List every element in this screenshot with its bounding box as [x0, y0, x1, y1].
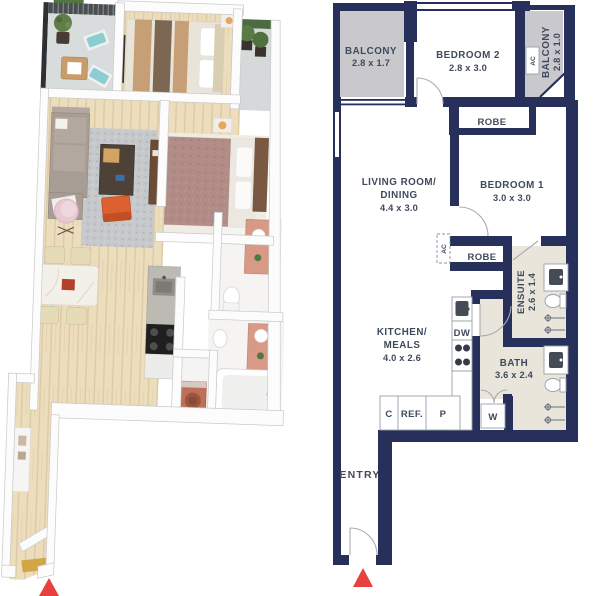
ac-label: AC: [441, 244, 448, 254]
toilet-3d: [213, 329, 228, 347]
bedroom1-dims: 3.0 x 3.0: [493, 193, 531, 203]
vanity-3d: [244, 219, 272, 274]
floorplan-3d: [1, 0, 297, 589]
living-dims: 4.4 x 3.0: [380, 203, 418, 213]
kitchen-dims: 4.0 x 2.6: [383, 353, 421, 363]
robe2-label: ROBE: [467, 252, 496, 263]
bed-icon: [125, 19, 225, 94]
bedroom2-label: BEDROOM 2: [436, 50, 500, 61]
washer-label: W: [488, 412, 497, 423]
stove-icon: [452, 340, 472, 371]
ac-label: AC: [530, 56, 537, 66]
balcony1-label: BALCONY: [345, 46, 397, 57]
entry-label: ENTRY: [339, 469, 380, 481]
living-label-2: DINING: [380, 190, 417, 201]
ensuite-dims: 2.6 x 1.4: [527, 272, 537, 311]
pantry-label: P: [440, 409, 447, 420]
ensuite-label: ENSUITE: [516, 270, 527, 314]
bath-label: BATH: [500, 358, 528, 369]
balcony2-label: BALCONY: [541, 26, 552, 78]
toilet-icon: [545, 379, 561, 392]
floorplan-image: BALCONY 2.8 x 1.7 BEDROOM 2 2.8 x 3.0 BA…: [0, 0, 600, 596]
bath-dims: 3.6 x 2.4: [495, 370, 534, 380]
living-label-1: LIVING ROOM/: [362, 177, 437, 188]
nightstand: [213, 118, 231, 133]
coffee-table: [99, 144, 135, 195]
north-arrow: [353, 568, 373, 587]
kitchen-label-2: MEALS: [384, 340, 421, 351]
balcony1-dims: 2.8 x 1.7: [352, 58, 390, 68]
toilet-3d: [223, 287, 240, 312]
console-table: [13, 427, 31, 492]
balcony-table: [61, 57, 88, 80]
north-arrow: [39, 578, 59, 596]
wardrobe: [252, 138, 269, 212]
bedroom1-label: BEDROOM 1: [480, 180, 544, 191]
floorplan-canvas: BALCONY 2.8 x 1.7 BEDROOM 2 2.8 x 3.0 BA…: [0, 0, 600, 596]
bedroom2-dims: 2.8 x 3.0: [449, 63, 487, 73]
balcony2-dims: 2.8 x 1.0: [552, 33, 562, 71]
toilet-icon: [545, 295, 561, 308]
cupboard-label: C: [385, 409, 392, 420]
dishwasher-label: DW: [454, 328, 471, 339]
bed-icon: [164, 137, 257, 228]
floorplan-2d: BALCONY 2.8 x 1.7 BEDROOM 2 2.8 x 3.0 BA…: [333, 1, 579, 587]
robe1-label: ROBE: [477, 117, 506, 128]
fridge-label: REF.: [401, 409, 423, 420]
armchair-orange: [101, 196, 131, 222]
kitchen-label-1: KITCHEN/: [377, 327, 427, 338]
